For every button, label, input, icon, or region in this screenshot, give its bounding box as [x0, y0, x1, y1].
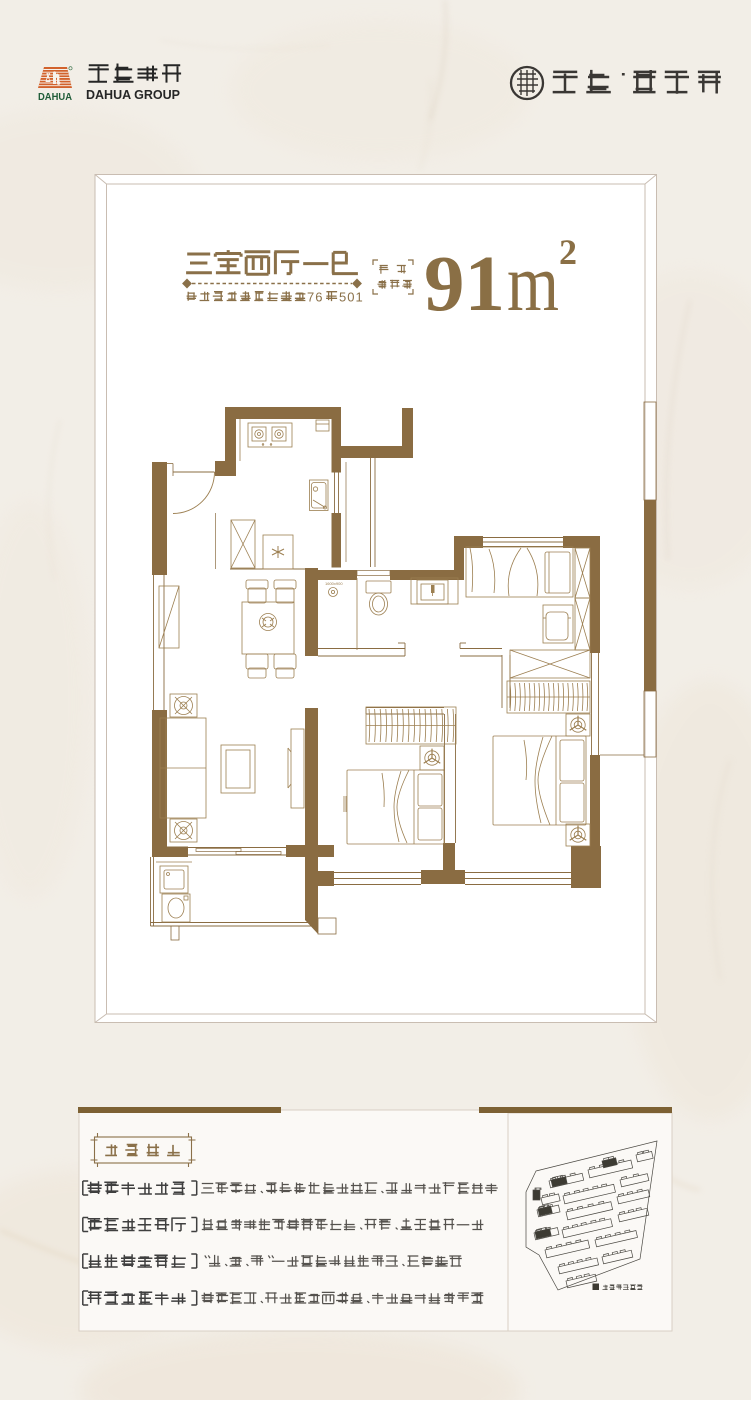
svg-text:m: m	[507, 237, 559, 328]
svg-text:1600x900: 1600x900	[325, 581, 343, 586]
svg-text:91: 91	[424, 241, 505, 328]
svg-text:DAHUA GROUP: DAHUA GROUP	[86, 88, 180, 102]
svg-text:DAHUA: DAHUA	[38, 91, 72, 103]
svg-text:2: 2	[559, 232, 577, 272]
svg-text:76: 76	[307, 290, 323, 305]
svg-text:501: 501	[339, 290, 364, 305]
